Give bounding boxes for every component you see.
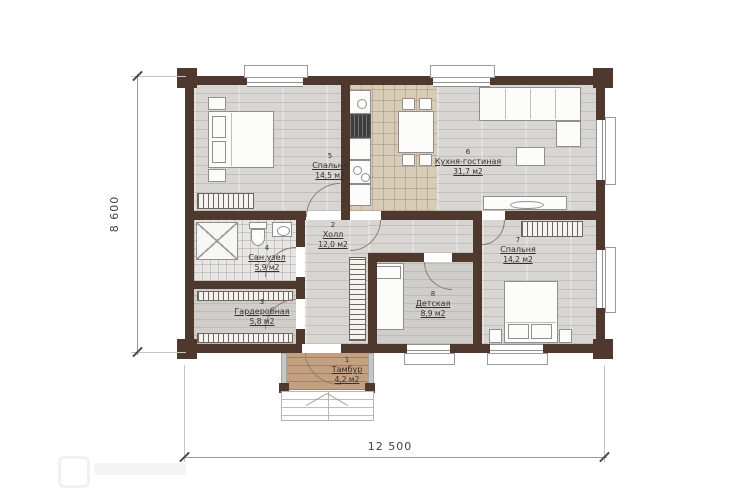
- room-name: Холл: [301, 230, 365, 240]
- room-area: 4,2 м2: [315, 375, 379, 385]
- room-area: 14,5 м2: [298, 171, 362, 181]
- room-number: 2: [301, 221, 365, 230]
- watermark-text: [94, 463, 186, 475]
- room-number: 6: [416, 148, 520, 157]
- chair: [402, 98, 415, 110]
- chair: [402, 154, 415, 166]
- outer-wall-right: [596, 308, 605, 353]
- sofa: [479, 87, 581, 121]
- toilet-tank: [249, 222, 267, 229]
- sofa-chaise: [556, 121, 581, 147]
- outer-wall-bottom: [185, 344, 302, 353]
- interior-wall: [194, 211, 306, 220]
- dimension-line-vertical: [137, 74, 138, 355]
- room-label-bedroom-7: 7 Спальня 14,2 м2: [486, 236, 550, 265]
- room-label-entry: 1 Тамбур 4,2 м2: [315, 356, 379, 385]
- stove: [349, 114, 371, 138]
- chair: [419, 98, 432, 110]
- outer-wall-top: [303, 76, 433, 85]
- height-dimension-label: 8 600: [108, 179, 122, 249]
- room-label-wardrobe: 3 Гардеробная 5,8 м2: [225, 298, 299, 327]
- room-number: 1: [315, 356, 379, 365]
- room-number: 7: [486, 236, 550, 245]
- outer-wall-top: [490, 76, 605, 85]
- floor-plan-canvas: 5 Спальня 14,5 м2 6 Кухня-гостиная 31,7 …: [0, 0, 752, 502]
- window-sill: [605, 247, 616, 313]
- wardrobe-cabinet: [521, 221, 583, 237]
- floor-corridor: [368, 220, 473, 253]
- room-area: 12,0 м2: [301, 240, 365, 250]
- room-number: 4: [235, 244, 299, 253]
- coffee-table: [516, 147, 545, 166]
- room-area: 5,8 м2: [225, 317, 299, 327]
- room-name: Тамбур: [315, 365, 379, 375]
- pillow: [212, 141, 226, 163]
- room-name: Кухня-гостиная: [416, 157, 520, 167]
- interior-wall: [368, 253, 377, 344]
- room-area: 8,9 м2: [397, 309, 469, 319]
- room-name: Сан.узел: [235, 253, 299, 263]
- dining-table: [398, 111, 434, 153]
- pillow: [212, 116, 226, 138]
- extension-line: [184, 365, 185, 462]
- kitchen-sink: [349, 90, 371, 114]
- room-area: 14,2 м2: [486, 255, 550, 265]
- room-name: Спальня: [486, 245, 550, 255]
- room-name: Детская: [397, 299, 469, 309]
- pillow: [375, 266, 401, 279]
- room-label-bathroom: 4 Сан.узел 5,9 м2: [235, 244, 299, 273]
- outer-wall-bottom: [341, 344, 407, 353]
- interior-wall: [194, 281, 296, 289]
- pillow: [508, 324, 529, 339]
- nightstand: [208, 169, 226, 182]
- outer-wall-right: [596, 180, 605, 250]
- room-area: 31,7 м2: [416, 167, 520, 177]
- room-name: Гардеробная: [225, 307, 299, 317]
- outer-wall-bottom: [450, 344, 490, 353]
- tv-sideboard: [483, 196, 567, 210]
- width-dimension-label: 12 500: [355, 440, 425, 453]
- outer-wall-left: [185, 76, 194, 353]
- window-sill: [430, 65, 495, 78]
- dresser: [197, 193, 254, 209]
- outer-wall-right: [596, 76, 605, 120]
- porch-steps: [281, 391, 374, 421]
- extension-line: [604, 365, 605, 462]
- interior-wall: [296, 277, 305, 299]
- interior-wall: [505, 211, 596, 220]
- room-label-bedroom-5: 5 Спальня 14,5 м2: [298, 152, 362, 181]
- interior-wall: [473, 211, 482, 344]
- window-sill: [487, 353, 548, 365]
- nightstand: [559, 329, 572, 343]
- window-sill: [605, 117, 616, 185]
- room-label-kitchen-living: 6 Кухня-гостиная 31,7 м2: [416, 148, 520, 177]
- outer-wall-top: [185, 76, 247, 85]
- interior-wall: [377, 253, 424, 262]
- interior-wall: [381, 211, 473, 220]
- nightstand: [489, 329, 502, 343]
- room-number: 8: [397, 290, 469, 299]
- interior-wall: [452, 253, 473, 262]
- nightstand: [208, 97, 226, 110]
- extension-line: [131, 76, 186, 77]
- room-number: 3: [225, 298, 299, 307]
- kitchen-cabinet: [349, 184, 371, 206]
- hall-closet: [349, 257, 366, 341]
- interior-wall: [296, 329, 305, 344]
- room-name: Спальня: [298, 161, 362, 171]
- room-label-hall: 2 Холл 12,0 м2: [301, 221, 365, 250]
- pillow: [531, 324, 552, 339]
- window-sill: [404, 353, 455, 365]
- dimension-line-horizontal: [183, 457, 607, 458]
- watermark-logo-icon: [58, 456, 90, 488]
- room-label-kids-room: 8 Детская 8,9 м2: [397, 290, 469, 319]
- room-number: 5: [298, 152, 362, 161]
- room-area: 5,9 м2: [235, 263, 299, 273]
- extension-line: [131, 352, 186, 353]
- washbasin: [272, 222, 292, 237]
- shower: [196, 222, 238, 260]
- window-sill: [244, 65, 308, 78]
- wardrobe-shelves: [197, 333, 293, 343]
